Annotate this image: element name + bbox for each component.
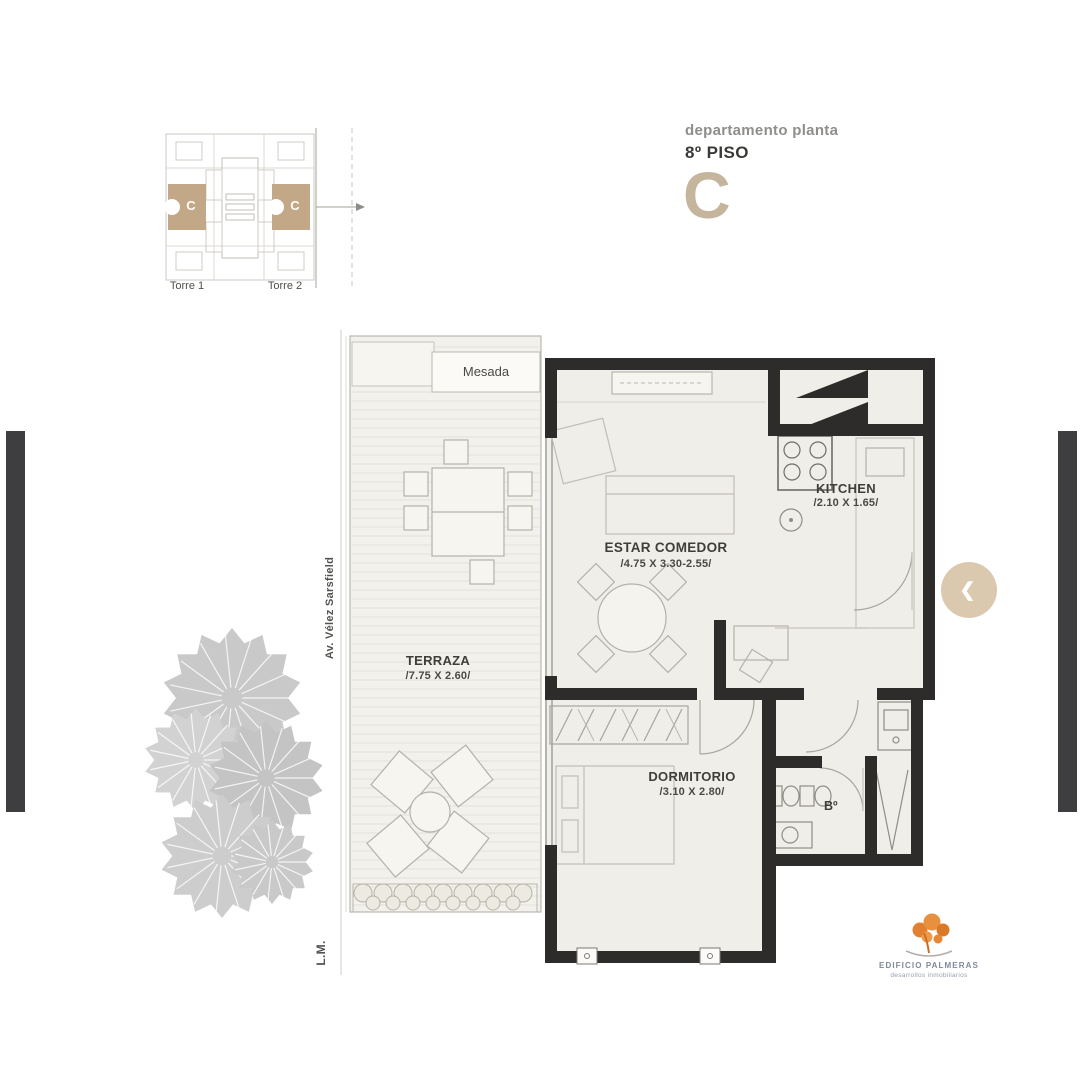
logo-name: EDIFICIO PALMERAS	[849, 961, 1009, 970]
terraza-deck	[350, 336, 541, 912]
right-edge-bar	[1058, 431, 1077, 812]
lot-lines	[341, 330, 346, 975]
estar-comedor-dims: /4.75 X 3.30-2.55/	[620, 558, 711, 570]
keyplan-unit-c-torre2: C	[276, 198, 314, 213]
logo-tagline: desarrollos inmobiliarios	[849, 972, 1009, 979]
tree-symbols	[145, 628, 322, 918]
floorplan-drawing	[0, 0, 1080, 1080]
terraza-label: TERRAZA	[406, 653, 470, 668]
carousel-prev-button[interactable]: ❮	[941, 562, 997, 618]
torre-2-label: Torre 2	[250, 280, 320, 292]
left-edge-bar	[6, 431, 25, 812]
chevron-left-icon: ❮	[960, 579, 976, 602]
torre-1-label: Torre 1	[152, 280, 222, 292]
property-line-label: L.M.	[314, 933, 328, 973]
unit-floor	[545, 365, 935, 960]
kitchen-label: KITCHEN	[816, 481, 876, 496]
dormitorio-label: DORMITORIO	[648, 769, 735, 784]
mesada-label: Mesada	[463, 364, 509, 379]
estar-comedor-label: ESTAR COMEDOR	[605, 540, 728, 555]
terraza-dims: /7.75 X 2.60/	[406, 670, 471, 682]
header-category: departamento planta	[685, 122, 838, 139]
logo-tree-icon	[906, 914, 952, 957]
keyplan-unit-c-torre1: C	[172, 198, 210, 213]
dormitorio-dims: /3.10 X 2.80/	[660, 786, 725, 798]
kitchen-dims: /2.10 X 1.65/	[814, 497, 879, 509]
header-unit-letter: C	[683, 162, 731, 228]
floorplan-page: departamento planta 8º PISO C C C Torre …	[0, 0, 1080, 1080]
street-label: Av. Vélez Sarsfield	[324, 538, 336, 678]
bathroom-label: Bº	[824, 799, 838, 813]
